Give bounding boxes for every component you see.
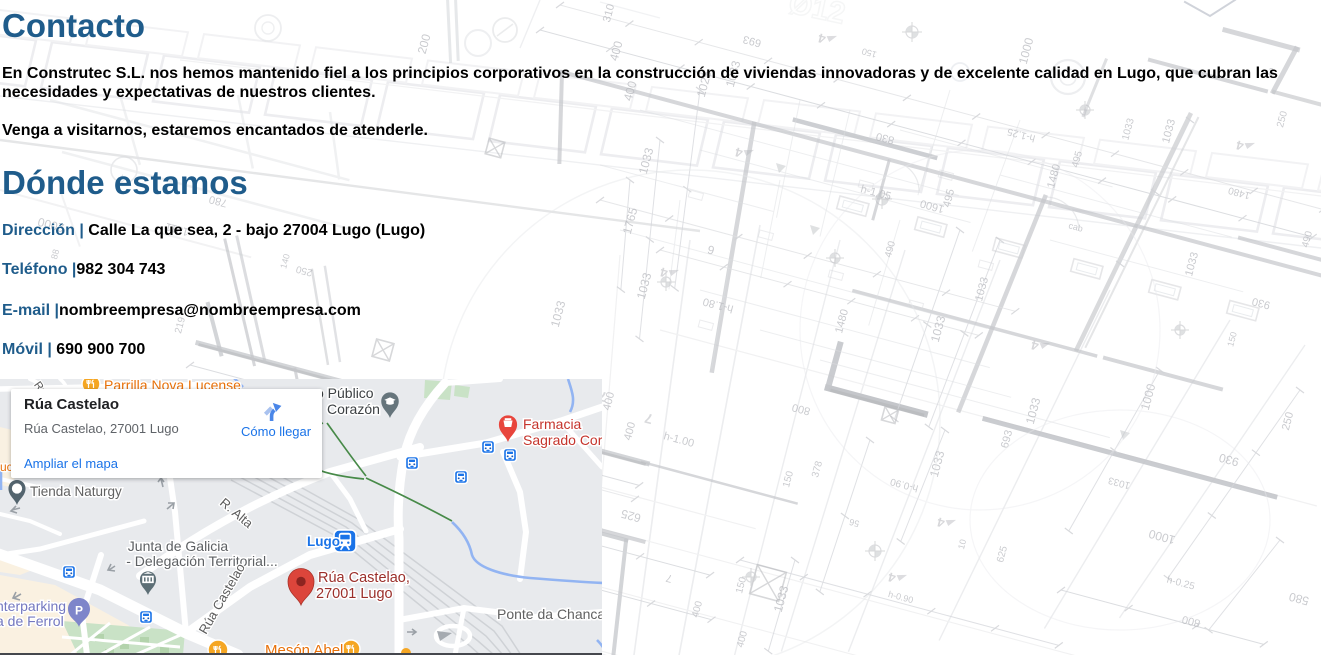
svg-text:1765: 1765 xyxy=(620,206,641,236)
svg-text:Ponte da Chanca: Ponte da Chanca xyxy=(497,606,602,622)
svg-text:4: 4 xyxy=(886,569,898,586)
svg-text:Corazón: Corazón xyxy=(327,401,380,417)
svg-text:625: 625 xyxy=(995,544,1010,563)
svg-text:400: 400 xyxy=(607,39,626,62)
svg-text:7: 7 xyxy=(643,410,655,428)
svg-text:56: 56 xyxy=(848,517,860,529)
svg-text:1033: 1033 xyxy=(1120,117,1136,142)
svg-text:400: 400 xyxy=(735,629,750,648)
svg-text:Tienda Naturgy: Tienda Naturgy xyxy=(30,484,122,499)
svg-text:10: 10 xyxy=(956,538,968,550)
svg-text:4: 4 xyxy=(733,144,745,161)
svg-text:1000: 1000 xyxy=(1138,382,1159,412)
svg-text:800: 800 xyxy=(1181,613,1202,629)
svg-text:1033: 1033 xyxy=(548,299,569,329)
svg-text:1000: 1000 xyxy=(1147,527,1177,548)
svg-text:1480: 1480 xyxy=(1045,163,1063,190)
svg-text:P: P xyxy=(75,604,83,618)
svg-text:4: 4 xyxy=(935,514,947,531)
svg-text:7: 7 xyxy=(665,571,674,584)
svg-text:580: 580 xyxy=(1287,589,1310,608)
svg-text:930: 930 xyxy=(1217,450,1240,469)
svg-text:1033: 1033 xyxy=(771,584,792,614)
svg-text:Lugo: Lugo xyxy=(307,534,340,549)
svg-text:693: 693 xyxy=(742,33,763,49)
svg-text:400: 400 xyxy=(622,421,638,442)
svg-text:140: 140 xyxy=(278,253,292,270)
svg-text:200: 200 xyxy=(415,32,434,55)
svg-text:150: 150 xyxy=(1225,331,1239,348)
svg-text:88: 88 xyxy=(49,248,61,260)
svg-text:nterparking: nterparking xyxy=(0,598,66,614)
svg-text:495: 495 xyxy=(1070,149,1085,168)
svg-text:400: 400 xyxy=(690,599,705,618)
svg-text:800: 800 xyxy=(791,401,812,417)
svg-text:a de Ferrol: a de Ferrol xyxy=(0,613,64,629)
svg-text:1033: 1033 xyxy=(1107,474,1132,490)
svg-text:1033: 1033 xyxy=(1183,251,1201,278)
svg-text:4: 4 xyxy=(658,264,670,281)
svg-text:1033: 1033 xyxy=(1023,396,1044,426)
svg-text:h-0.25: h-0.25 xyxy=(1166,575,1197,593)
svg-text:27001 Lugo: 27001 Lugo xyxy=(316,586,393,602)
svg-text:490: 490 xyxy=(883,239,898,258)
svg-text:150: 150 xyxy=(781,469,796,488)
svg-text:Sagrado Cora: Sagrado Cora xyxy=(523,432,602,448)
svg-text:Farmacia: Farmacia xyxy=(523,416,582,432)
svg-text:250: 250 xyxy=(1275,109,1290,128)
svg-text:150: 150 xyxy=(734,575,749,594)
svg-text:378: 378 xyxy=(810,459,825,478)
svg-text:1000: 1000 xyxy=(1016,36,1037,66)
svg-text:cab: cab xyxy=(1067,220,1084,233)
svg-text:1033: 1033 xyxy=(928,314,949,344)
svg-text:250: 250 xyxy=(294,263,313,278)
svg-text:930: 930 xyxy=(1251,295,1272,311)
svg-text:h-1.25: h-1.25 xyxy=(1006,125,1037,143)
svg-text:4: 4 xyxy=(1234,137,1246,154)
svg-text:o Público: o Público xyxy=(316,385,374,401)
svg-text:150: 150 xyxy=(861,46,878,60)
svg-text:693: 693 xyxy=(999,429,1015,450)
svg-text:490: 490 xyxy=(1300,229,1315,248)
svg-text:1033: 1033 xyxy=(634,271,655,301)
svg-text:625: 625 xyxy=(619,506,642,525)
svg-text:h-1.00: h-1.00 xyxy=(662,430,695,450)
svg-text:Junta de Galicia: Junta de Galicia xyxy=(128,538,229,554)
svg-text:250: 250 xyxy=(1280,411,1296,432)
svg-text:310: 310 xyxy=(601,3,617,24)
svg-text:Rúa Castelao,: Rúa Castelao, xyxy=(318,570,410,586)
svg-text:1480: 1480 xyxy=(833,308,851,335)
svg-text:- Delegación Territorial...: - Delegación Territorial... xyxy=(126,553,277,569)
svg-text:Ø12: Ø12 xyxy=(786,0,848,31)
svg-text:4: 4 xyxy=(816,30,828,47)
